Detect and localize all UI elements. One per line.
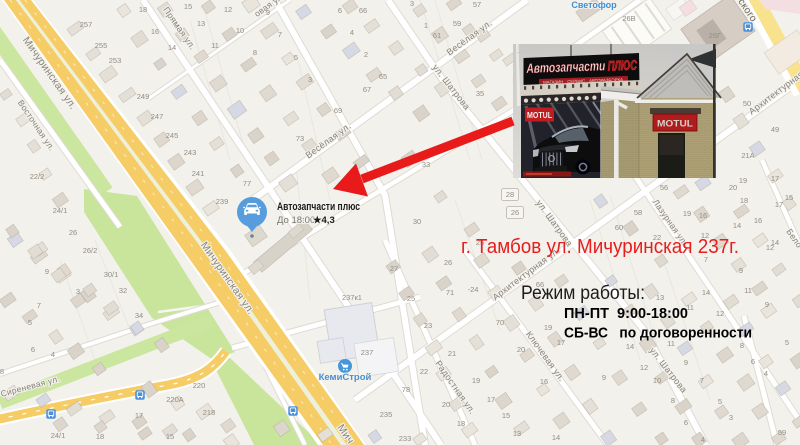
svg-text:61: 61 [433, 31, 441, 40]
svg-text:Светофор: Светофор [571, 0, 617, 10]
svg-text:19: 19 [544, 323, 552, 332]
svg-text:73: 73 [296, 134, 304, 143]
svg-text:2: 2 [364, 50, 368, 59]
svg-text:23: 23 [424, 321, 432, 330]
svg-text:8: 8 [740, 341, 744, 350]
svg-text:12: 12 [224, 5, 232, 14]
svg-text:24/1: 24/1 [53, 206, 68, 215]
svg-text:249: 249 [137, 92, 150, 101]
svg-text:19: 19 [683, 209, 691, 218]
svg-text:26: 26 [69, 228, 77, 237]
svg-text:10: 10 [653, 376, 661, 385]
svg-text:220: 220 [193, 381, 206, 390]
svg-text:24/1: 24/1 [51, 431, 66, 440]
svg-text:Автозапчасти: Автозапчасти [525, 58, 606, 76]
svg-text:22: 22 [420, 367, 428, 376]
svg-text:MOTUL: MOTUL [527, 111, 552, 120]
svg-text:16: 16 [540, 377, 548, 386]
svg-text:14: 14 [168, 43, 176, 52]
svg-text:233: 233 [399, 434, 412, 443]
svg-text:7: 7 [278, 30, 282, 39]
svg-text:56: 56 [660, 183, 668, 192]
svg-text:5: 5 [294, 53, 298, 62]
svg-text:25: 25 [407, 294, 415, 303]
svg-text:17: 17 [771, 174, 779, 183]
svg-text:ПЛЮС: ПЛЮС [608, 57, 638, 73]
svg-text:9: 9 [765, 300, 769, 309]
svg-text:26В: 26В [622, 14, 635, 23]
svg-text:14: 14 [702, 288, 710, 297]
svg-text:5: 5 [718, 397, 722, 406]
svg-text:21: 21 [448, 349, 456, 358]
svg-text:50: 50 [743, 99, 751, 108]
svg-text:35: 35 [476, 89, 484, 98]
svg-text:13: 13 [656, 293, 664, 302]
svg-text:4: 4 [701, 435, 705, 444]
svg-text:26: 26 [444, 258, 452, 267]
svg-text:14: 14 [771, 238, 779, 247]
svg-text:12: 12 [716, 309, 724, 318]
svg-text:58: 58 [634, 208, 642, 217]
svg-text:6: 6 [751, 357, 755, 366]
svg-text:4: 4 [764, 369, 768, 378]
svg-text:26: 26 [511, 208, 519, 217]
svg-text:★4,3: ★4,3 [313, 215, 335, 226]
svg-text:14: 14 [733, 221, 741, 230]
svg-text:20: 20 [517, 345, 525, 354]
svg-text:16: 16 [699, 211, 707, 220]
svg-text:7: 7 [700, 376, 704, 385]
svg-text:237: 237 [361, 348, 374, 357]
svg-text:20: 20 [729, 183, 737, 192]
svg-text:г. Тамбов ул. Мичуринская 237г: г. Тамбов ул. Мичуринская 237г. [461, 236, 739, 258]
svg-text:-24: -24 [468, 285, 479, 294]
svg-text:15: 15 [166, 432, 174, 441]
svg-text:78: 78 [402, 385, 410, 394]
svg-text:16: 16 [754, 216, 762, 225]
svg-text:1: 1 [424, 21, 428, 30]
svg-text:30/1: 30/1 [104, 270, 119, 279]
svg-text:9: 9 [45, 267, 49, 276]
svg-text:3: 3 [76, 287, 80, 296]
svg-text:18: 18 [740, 196, 748, 205]
svg-text:28: 28 [506, 190, 514, 199]
svg-text:57: 57 [473, 0, 481, 9]
svg-text:3: 3 [410, 0, 414, 8]
svg-text:17: 17 [487, 395, 495, 404]
svg-text:22/2: 22/2 [30, 172, 45, 181]
svg-text:3: 3 [729, 413, 733, 422]
svg-text:32: 32 [119, 286, 127, 295]
svg-text:15: 15 [785, 193, 793, 202]
svg-text:4: 4 [350, 28, 354, 37]
svg-text:26Г: 26Г [709, 31, 721, 40]
svg-text:243: 243 [184, 148, 197, 157]
svg-text:17: 17 [775, 200, 783, 209]
svg-text:255: 255 [95, 41, 108, 50]
svg-text:33: 33 [422, 160, 430, 169]
svg-text:13: 13 [513, 429, 521, 438]
svg-text:3: 3 [308, 75, 312, 84]
svg-text:20: 20 [442, 400, 450, 409]
svg-text:11: 11 [211, 41, 219, 50]
svg-text:11: 11 [744, 286, 752, 295]
svg-text:ПН-ПТ 9:00-18:00: ПН-ПТ 9:00-18:00 [564, 305, 688, 322]
svg-text:67: 67 [363, 85, 371, 94]
svg-text:8: 8 [0, 367, 4, 376]
svg-text:257: 257 [80, 20, 93, 29]
svg-text:77: 77 [243, 179, 251, 188]
svg-text:4: 4 [51, 350, 55, 359]
svg-text:220А: 220А [166, 395, 184, 404]
svg-text:СБ-ВС по договоренности: СБ-ВС по договоренности [564, 325, 752, 342]
svg-text:60: 60 [615, 223, 623, 232]
svg-text:235: 235 [380, 410, 393, 419]
svg-text:66: 66 [359, 6, 367, 15]
svg-text:12: 12 [640, 363, 648, 372]
svg-text:До 18:00: До 18:00 [277, 215, 315, 226]
svg-text:8: 8 [253, 48, 257, 57]
svg-text:65: 65 [379, 72, 387, 81]
svg-text:239: 239 [216, 197, 229, 206]
svg-text:7: 7 [37, 301, 41, 310]
svg-text:6: 6 [338, 6, 342, 15]
svg-text:70: 70 [496, 318, 504, 327]
svg-text:КемиСтрой: КемиСтрой [319, 372, 372, 383]
svg-text:247: 247 [151, 112, 164, 121]
svg-text:9: 9 [684, 358, 688, 367]
svg-text:21А: 21А [741, 151, 754, 160]
svg-text:16: 16 [151, 27, 159, 36]
svg-text:19: 19 [739, 176, 747, 185]
svg-text:13: 13 [197, 19, 205, 28]
svg-text:10: 10 [236, 26, 244, 35]
svg-text:30: 30 [413, 217, 421, 226]
svg-text:8: 8 [671, 396, 675, 405]
svg-text:34: 34 [135, 311, 143, 320]
svg-text:59: 59 [453, 19, 461, 28]
svg-text:9: 9 [602, 373, 606, 382]
svg-text:18: 18 [96, 432, 104, 441]
svg-text:59: 59 [778, 428, 786, 437]
svg-text:MOTUL: MOTUL [657, 119, 694, 129]
svg-text:5: 5 [785, 338, 789, 347]
svg-text:14: 14 [626, 342, 634, 351]
svg-text:15: 15 [502, 411, 510, 420]
svg-text:Режим работы:: Режим работы: [521, 283, 645, 304]
svg-text:14: 14 [552, 433, 560, 442]
svg-text:71: 71 [446, 288, 454, 297]
svg-text:18: 18 [457, 419, 465, 428]
svg-text:9: 9 [266, 8, 270, 17]
svg-text:245: 245 [166, 131, 179, 140]
svg-text:6: 6 [31, 345, 35, 354]
svg-text:253: 253 [109, 56, 122, 65]
svg-text:69: 69 [334, 106, 342, 115]
svg-text:5: 5 [28, 318, 32, 327]
svg-text:26/2: 26/2 [83, 246, 98, 255]
svg-text:218: 218 [203, 408, 216, 417]
svg-text:6: 6 [684, 418, 688, 427]
svg-text:Автозапчасти плюс: Автозапчасти плюс [277, 201, 360, 213]
svg-text:15: 15 [184, 2, 192, 11]
svg-text:17: 17 [135, 411, 143, 420]
svg-text:19: 19 [472, 376, 480, 385]
svg-text:241: 241 [192, 169, 205, 178]
svg-text:49: 49 [771, 125, 779, 134]
svg-text:18: 18 [139, 5, 147, 14]
svg-text:237к1: 237к1 [342, 293, 362, 302]
svg-text:27: 27 [390, 264, 398, 273]
svg-text:9: 9 [739, 266, 743, 275]
